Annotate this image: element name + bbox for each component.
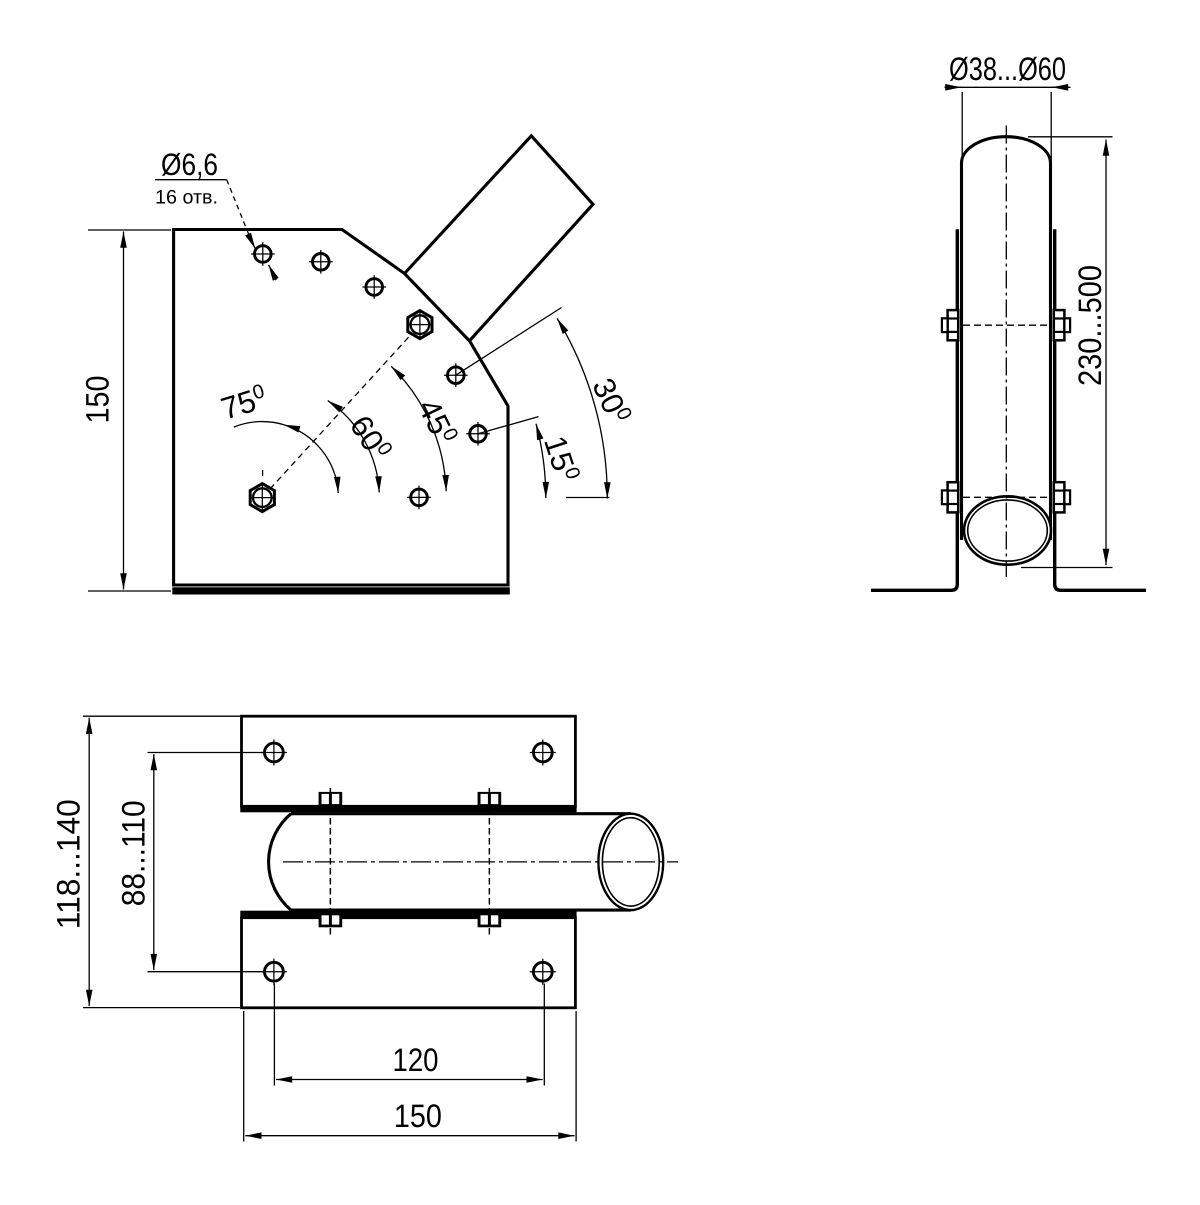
svg-text:118...140: 118...140 <box>51 799 87 929</box>
svg-text:150: 150 <box>80 376 116 424</box>
svg-text:16 отв.: 16 отв. <box>155 187 218 209</box>
svg-text:150: 150 <box>394 1098 442 1134</box>
svg-text:230...500: 230...500 <box>1072 265 1108 386</box>
svg-text:120: 120 <box>393 1042 439 1078</box>
svg-text:88...110: 88...110 <box>116 800 152 906</box>
svg-text:Ø38...Ø60: Ø38...Ø60 <box>949 51 1066 87</box>
svg-text:Ø6,6: Ø6,6 <box>161 147 218 182</box>
